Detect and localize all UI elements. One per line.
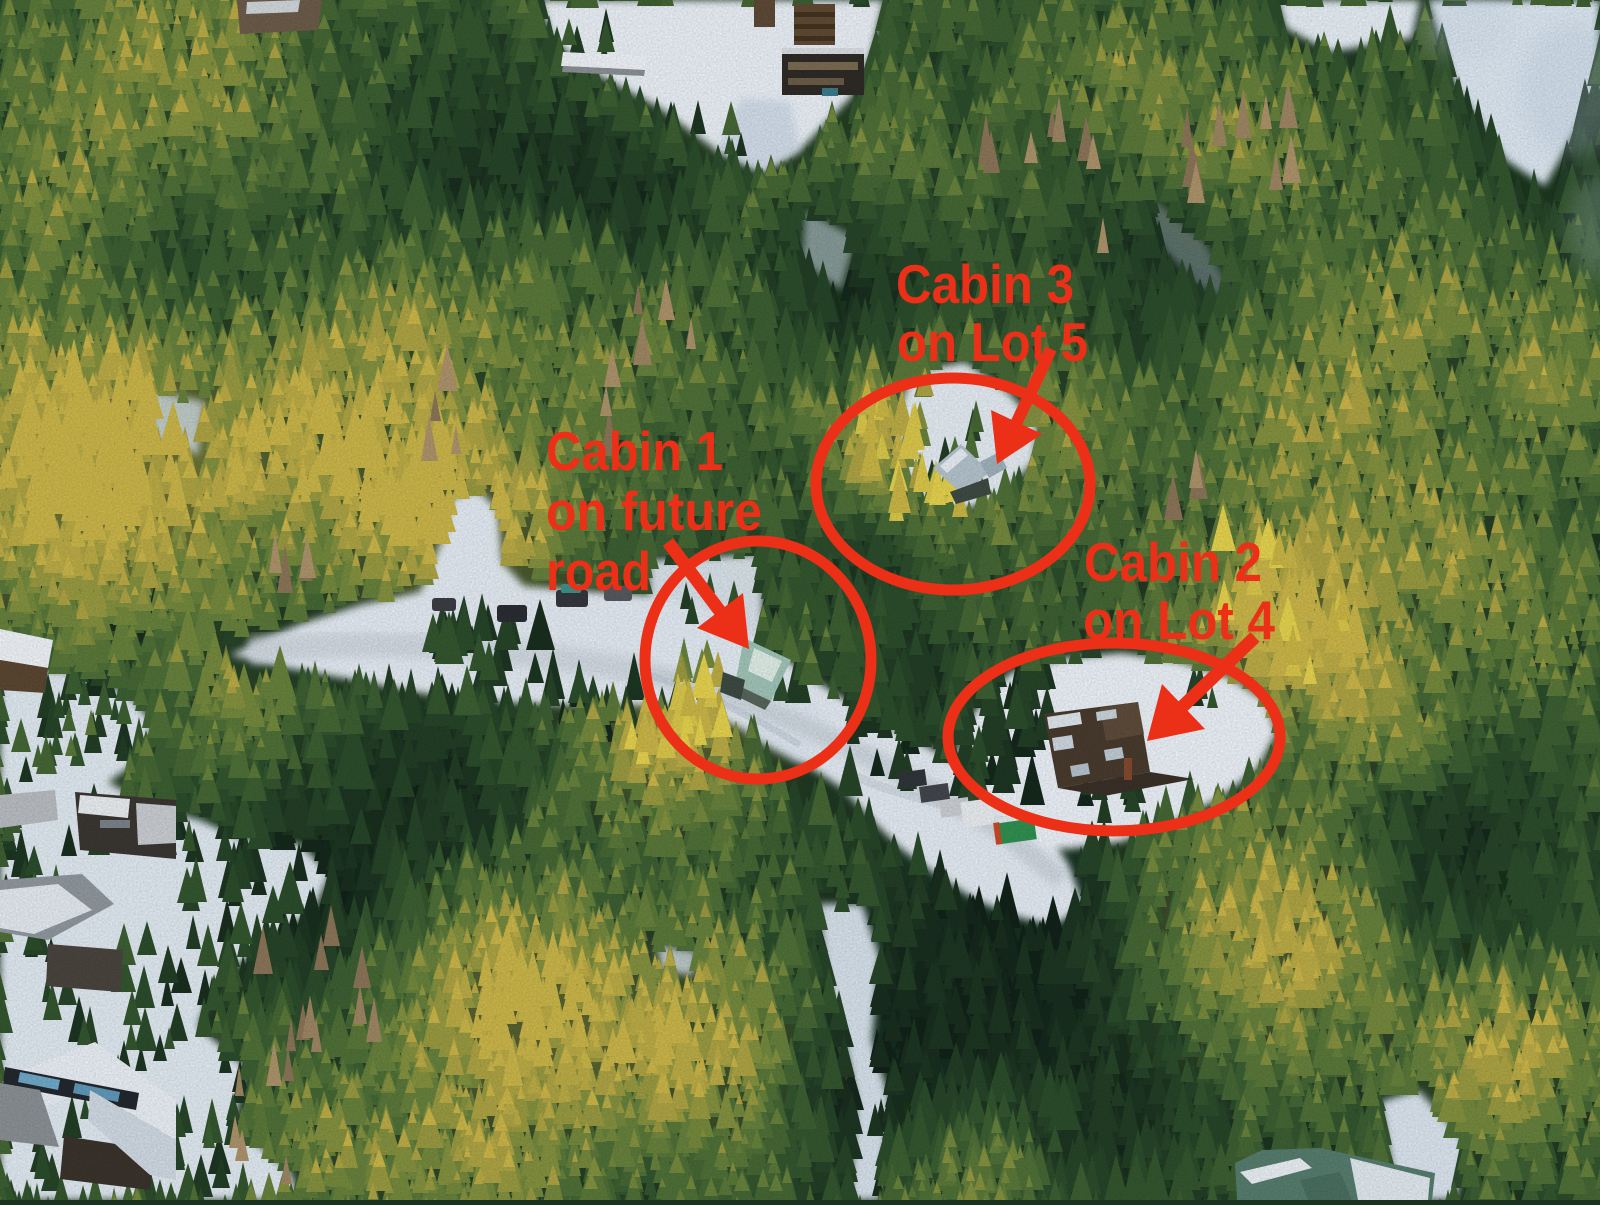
svg-text:road: road (546, 540, 651, 602)
svg-text:on Lot 5: on Lot 5 (897, 311, 1088, 373)
svg-text:Cabin 1: Cabin 1 (546, 420, 723, 482)
svg-text:on future: on future (546, 480, 762, 542)
svg-text:on Lot 4: on Lot 4 (1083, 589, 1275, 651)
svg-text:Cabin 3: Cabin 3 (896, 253, 1074, 315)
svg-text:Cabin 2: Cabin 2 (1084, 531, 1262, 593)
